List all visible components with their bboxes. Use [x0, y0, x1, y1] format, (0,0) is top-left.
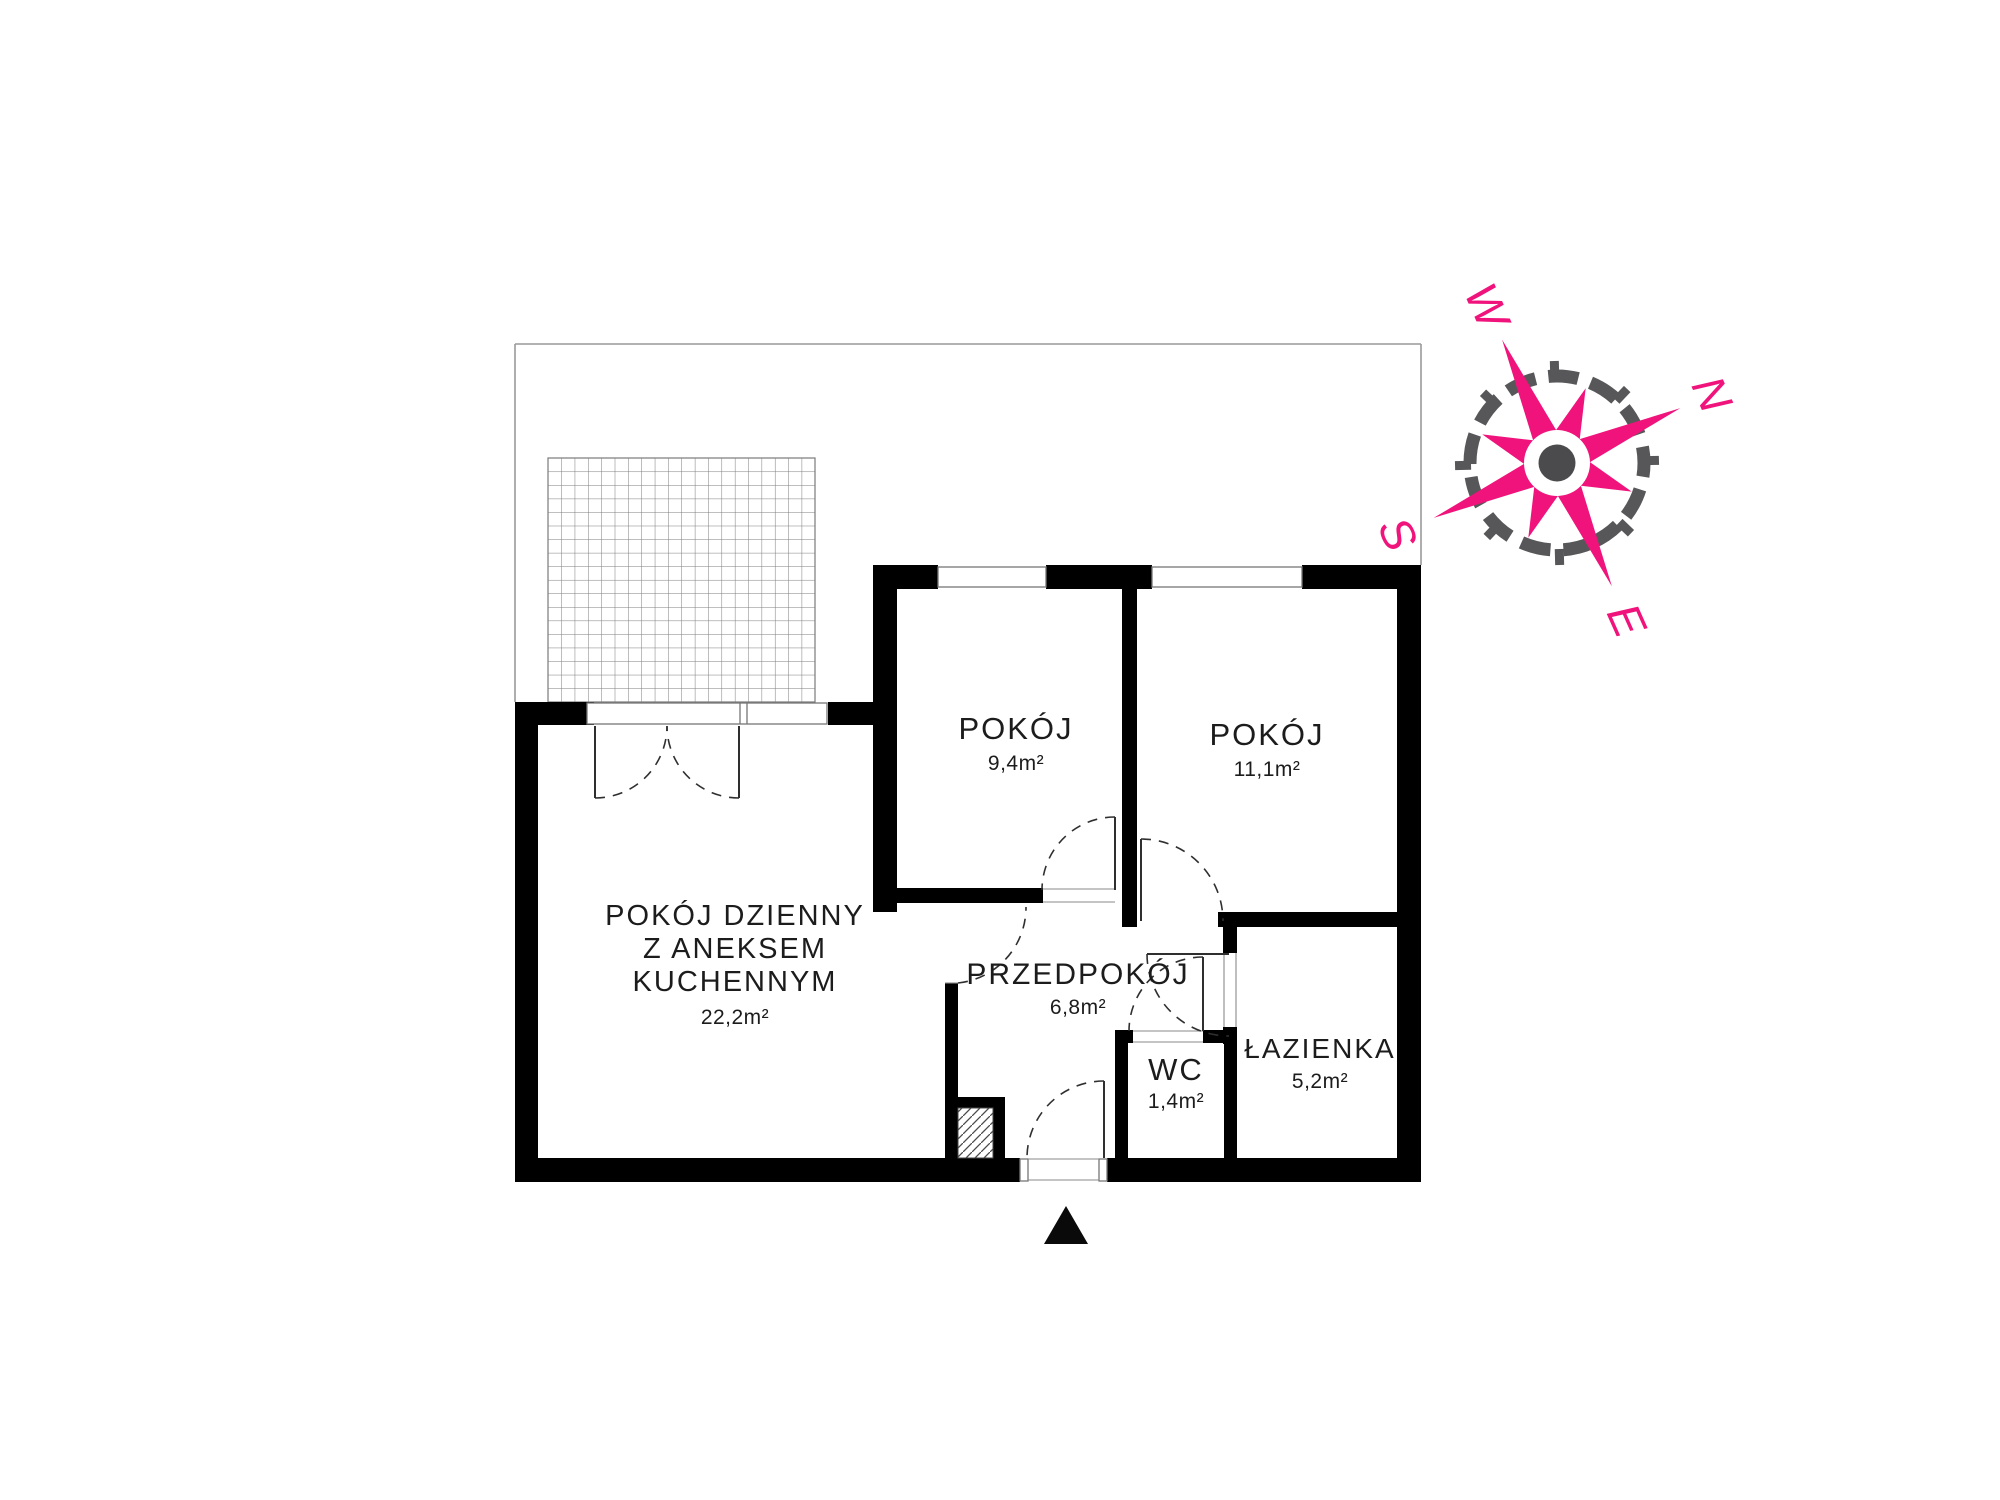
room-name: POKÓJ DZIENNY Z ANEKSEM KUCHENNYM [535, 900, 935, 999]
room-name: POKÓJ [891, 712, 1141, 745]
entrance-arrow [1044, 1206, 1088, 1244]
room-name: WC [1116, 1053, 1236, 1086]
room-label-hall: PRZEDPOKÓJ 6,8m² [918, 958, 1238, 1020]
room-name: PRZEDPOKÓJ [918, 958, 1238, 991]
room-area: 9,4m² [891, 752, 1141, 776]
room-name-line: Z ANEKSEM [643, 933, 827, 965]
room-area: 6,8m² [918, 996, 1238, 1020]
room-area: 5,2m² [1230, 1070, 1410, 1094]
balcony-terrace [548, 458, 815, 702]
room-area: 1,4m² [1116, 1090, 1236, 1114]
room-area: 11,1m² [1142, 758, 1392, 782]
room-label-bath: ŁAZIENKA 5,2m² [1230, 1032, 1410, 1094]
compass-label-west: W [1454, 275, 1521, 340]
compass-label-south: S [1368, 509, 1428, 558]
room-name: ŁAZIENKA [1230, 1032, 1410, 1065]
room-label-room1: POKÓJ 9,4m² [891, 712, 1141, 776]
shaft-hatch [958, 1108, 993, 1158]
room-label-wc: WC 1,4m² [1116, 1053, 1236, 1114]
room-name: POKÓJ [1142, 718, 1392, 751]
room-label-room2: POKÓJ 11,1m² [1142, 718, 1392, 782]
compass-label-east: E [1597, 596, 1658, 646]
compass-rose: N E S W [1296, 206, 1813, 716]
room-label-living: POKÓJ DZIENNY Z ANEKSEM KUCHENNYM 22,2m² [535, 900, 935, 1030]
compass-label-north: N [1682, 368, 1743, 420]
room-area: 22,2m² [535, 1006, 935, 1030]
floor-plan-page: N E S W POKÓJ DZIENNY Z ANEKSEM KUCHENNY… [0, 0, 2000, 1500]
room-name-line: POKÓJ DZIENNY [605, 900, 865, 932]
room-name-line: KUCHENNYM [633, 966, 838, 998]
